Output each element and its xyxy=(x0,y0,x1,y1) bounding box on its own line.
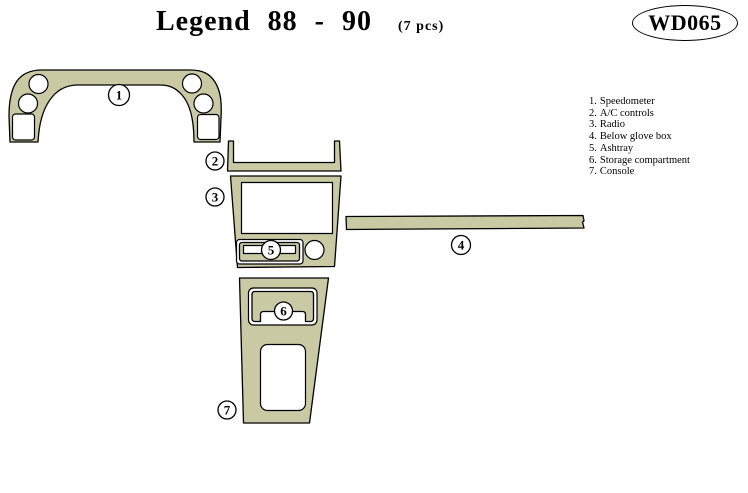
callout-number: 5 xyxy=(268,243,275,258)
piece-below-glove-box xyxy=(346,216,584,230)
callout-2: 2 xyxy=(206,152,224,170)
callout-5: 5 xyxy=(262,241,281,260)
callout-number: 3 xyxy=(212,190,219,205)
piece-speedometer-bezel xyxy=(9,70,221,142)
callout-number: 1 xyxy=(116,88,123,103)
callout-3: 3 xyxy=(206,188,224,206)
gauge-hole-left-upper xyxy=(29,75,48,94)
callout-6: 6 xyxy=(275,302,293,320)
vent-hole-right xyxy=(198,115,220,140)
radio-opening xyxy=(242,183,333,234)
vent-hole-left xyxy=(13,114,35,140)
piece-radio-panel xyxy=(231,176,342,268)
piece-console xyxy=(240,278,329,423)
callout-1: 1 xyxy=(109,85,130,106)
callout-number: 7 xyxy=(224,403,231,418)
callout-4: 4 xyxy=(452,236,471,255)
shifter-opening xyxy=(261,345,306,411)
dash-kit-page: Legend 88 - 90 (7 pcs) WD065 1.Speedomet… xyxy=(0,0,748,493)
lighter-hole xyxy=(305,241,324,260)
callout-number: 6 xyxy=(280,304,287,319)
gauge-hole-right-lower xyxy=(194,94,213,113)
gauge-hole-right-upper xyxy=(183,74,202,93)
callout-number: 4 xyxy=(458,238,465,253)
callout-number: 2 xyxy=(212,154,219,169)
piece-ac-controls xyxy=(228,141,342,171)
gauge-hole-left-lower xyxy=(19,94,38,113)
callout-7: 7 xyxy=(218,401,236,419)
dash-kit-diagram: 1 2 3 4 5 6 7 xyxy=(0,0,748,493)
